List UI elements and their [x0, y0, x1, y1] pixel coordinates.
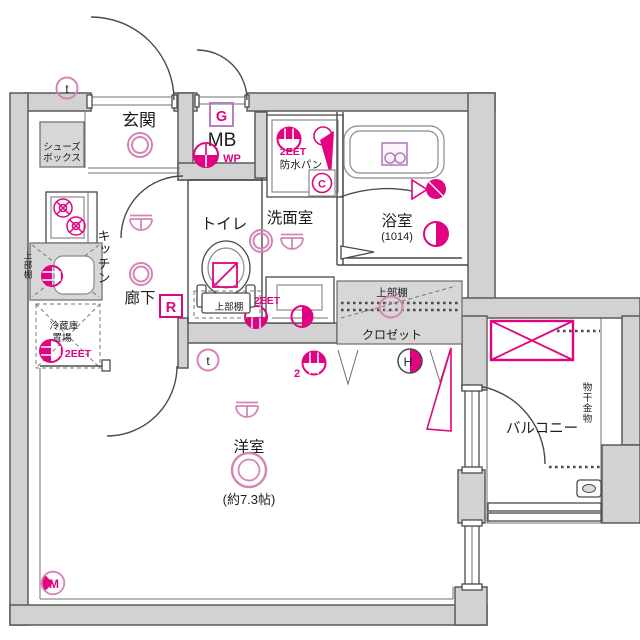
downlight-icon — [236, 403, 258, 418]
entrance-area: 玄関 シューズ ボックス t — [40, 78, 180, 174]
mb-door-arc — [197, 50, 247, 100]
balcony-drain — [577, 480, 601, 497]
balcony-label: バルコニー — [506, 421, 578, 437]
shoe-box-label-1: シューズ — [43, 141, 81, 153]
bathroom-label: 浴室 — [381, 212, 412, 230]
circled-h-icon: H — [398, 349, 422, 373]
circled-c-label: C — [318, 179, 326, 191]
fridge-outlet-label: 2EET — [65, 348, 92, 360]
ceiling-light-icon — [128, 133, 152, 157]
kitchen-label: キッチン — [96, 229, 111, 285]
hallway-label: 廊下 — [124, 289, 155, 307]
bathroom-area: 浴室 (1014) — [337, 112, 468, 265]
bath-door-pointer — [341, 246, 374, 259]
kitchen-area: 上部棚 キッチン 冷蔵庫 置場 2EET — [23, 192, 111, 368]
laundry-hardware-label: 物干金物 — [581, 381, 593, 424]
kitchen-upper-shelf-label: 上部棚 — [23, 251, 33, 280]
downlight-icon — [130, 216, 152, 231]
fridge-label-1: 冷蔵庫 — [50, 320, 79, 332]
washroom-label: 洗面室 — [267, 209, 314, 227]
circled-m-icon: M — [42, 572, 65, 595]
circled-t-hall-label: t — [206, 354, 210, 368]
ceiling-light-icon — [250, 230, 272, 252]
entrance-label: 玄関 — [122, 111, 156, 130]
room-door-leaf — [427, 348, 451, 431]
shoe-box-label-2: ボックス — [43, 153, 81, 164]
downlight-icon — [281, 235, 303, 250]
closet-area: 上部棚 クロゼット H — [337, 281, 462, 431]
toilet-label: トイレ — [201, 216, 248, 233]
entrance-opening — [87, 95, 249, 108]
bath-door-curve — [340, 189, 412, 197]
circled-h-label: H — [404, 355, 413, 369]
kitchen-sink — [54, 256, 94, 294]
room-outlet-count: 2 — [294, 368, 300, 380]
balcony-railing — [488, 503, 601, 511]
fridge-outlet-icon — [40, 340, 62, 362]
hall-door-arc — [121, 176, 183, 238]
entrance-door-arc — [91, 17, 174, 100]
floor-plan: 玄関 シューズ ボックス t G MB WP 2EET 防水パン — [0, 0, 640, 640]
western-room-area: 洋室 (約7.3帖) 2 M — [40, 352, 482, 600]
closet-label: クロゼット — [362, 328, 422, 342]
toilet-upper-shelf-label: 上部棚 — [215, 301, 244, 313]
washer-pan-area: 2EET 防水パン C — [267, 115, 343, 197]
room-door-arc — [107, 366, 177, 436]
bath-switch-icon — [424, 222, 448, 246]
closet-door-fold — [430, 350, 450, 382]
floor-plan-page: 玄関 シューズ ボックス t G MB WP 2EET 防水パン — [0, 0, 640, 640]
washroom-area: 洗面室 2EET — [245, 178, 334, 328]
closet-door-fold — [338, 350, 358, 384]
circled-m-label: M — [49, 577, 59, 591]
ceiling-light-icon — [232, 453, 266, 487]
gas-meter-label: G — [216, 109, 227, 125]
remote-box-label: R — [166, 300, 177, 316]
wp-label: WP — [223, 153, 241, 165]
ceiling-light-icon — [130, 263, 152, 285]
western-room-size-label: (約7.3帖) — [223, 492, 276, 507]
toilet-area: トイレ 上部棚 — [188, 180, 262, 323]
waterproof-pan-label: 防水パン — [280, 158, 323, 171]
wp-outlet-icon — [194, 143, 218, 167]
balcony-railing — [488, 513, 601, 521]
room-outlet-icon — [303, 352, 326, 375]
meter-box-area: G MB WP — [194, 103, 241, 167]
balcony-area: バルコニー 物干金物 — [487, 318, 601, 523]
bath-mixer-icon — [412, 180, 427, 199]
mb-label: MB — [208, 130, 237, 151]
washer-outlet-label: 2EET — [280, 146, 307, 158]
fridge-label-2: 置場 — [52, 332, 72, 344]
tub-faucet-icon — [382, 143, 407, 165]
bathroom-size-label: (1014) — [381, 231, 413, 243]
